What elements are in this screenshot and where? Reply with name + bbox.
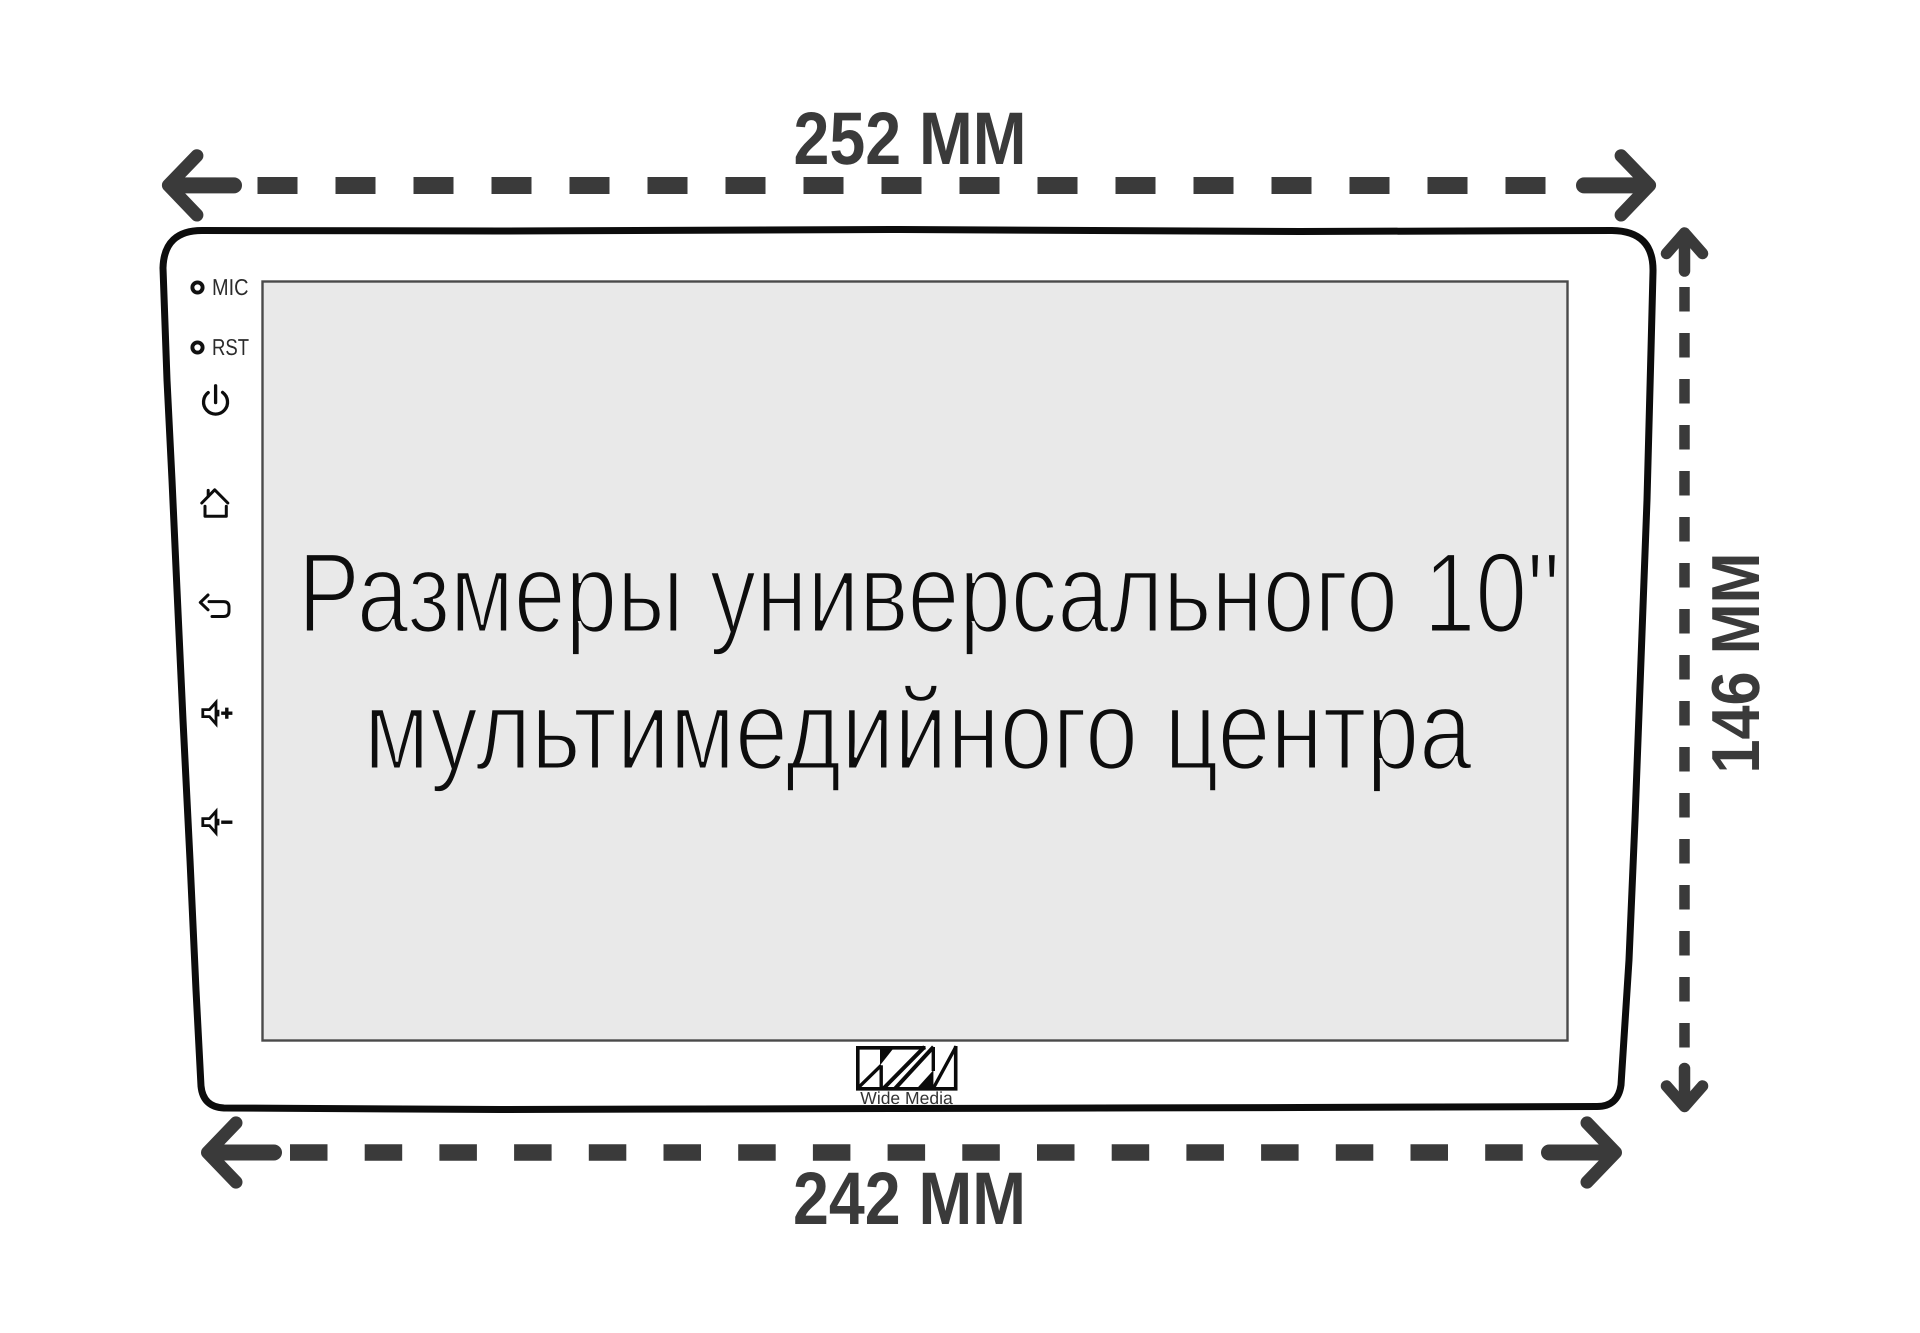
svg-text:Wide Media: Wide Media — [860, 1088, 953, 1108]
svg-text:Размеры универсального 10": Размеры универсального 10" — [298, 530, 1560, 657]
svg-text:252 MM: 252 MM — [794, 97, 1027, 180]
svg-text:MIC: MIC — [212, 274, 249, 300]
svg-text:мультимедийного центра: мультимедийного центра — [364, 667, 1472, 794]
svg-text:146 MM: 146 MM — [1698, 553, 1774, 774]
svg-text:242 MM: 242 MM — [793, 1157, 1026, 1240]
svg-text:RST: RST — [212, 334, 249, 360]
